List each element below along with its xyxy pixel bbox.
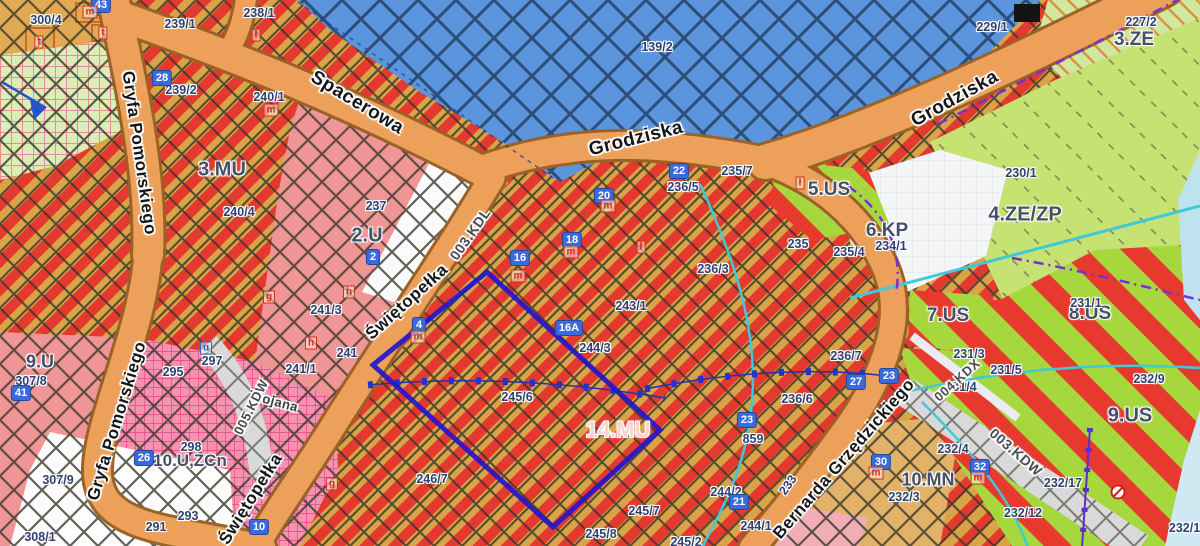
no-entry-marker [1112, 486, 1125, 499]
zoning-map-viewport[interactable]: 3.MU2.U9.U14.MU5.US6.KP4.ZE/ZP3.ZE7.US8.… [0, 0, 1200, 546]
black-square-marker [1014, 4, 1040, 22]
map-graphics [0, 0, 1200, 546]
